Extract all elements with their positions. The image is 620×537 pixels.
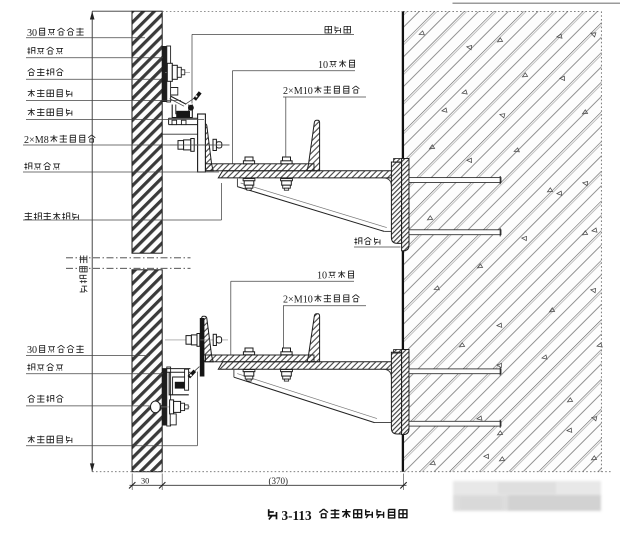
svg-text:10: 10 bbox=[317, 271, 327, 282]
svg-text:2×M10: 2×M10 bbox=[283, 295, 313, 306]
svg-text:3-113: 3-113 bbox=[282, 508, 312, 523]
svg-text:30: 30 bbox=[27, 28, 37, 39]
svg-text:2×M10: 2×M10 bbox=[283, 86, 313, 97]
svg-text:2×M8: 2×M8 bbox=[24, 135, 49, 146]
svg-text:30: 30 bbox=[27, 345, 37, 356]
svg-text:(370): (370) bbox=[269, 476, 289, 486]
svg-text:30: 30 bbox=[141, 476, 149, 485]
svg-text:10: 10 bbox=[318, 60, 328, 71]
